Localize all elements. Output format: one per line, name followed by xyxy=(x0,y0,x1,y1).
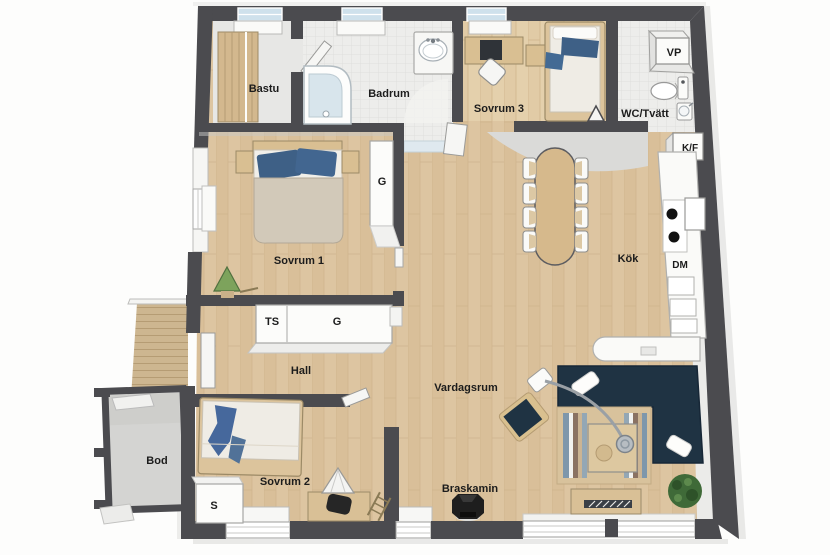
svg-text:Badrum: Badrum xyxy=(368,88,410,100)
svg-text:DM: DM xyxy=(672,260,688,271)
svg-text:Bod: Bod xyxy=(146,455,167,467)
svg-text:K/F: K/F xyxy=(682,143,698,154)
svg-text:Sovrum 2: Sovrum 2 xyxy=(260,476,310,488)
svg-text:WC/Tvätt: WC/Tvätt xyxy=(621,108,669,120)
svg-text:Hall: Hall xyxy=(291,365,311,377)
svg-text:VP: VP xyxy=(667,47,682,59)
svg-text:TS: TS xyxy=(265,316,279,328)
svg-text:G: G xyxy=(333,316,342,328)
svg-text:Braskamin: Braskamin xyxy=(442,483,499,495)
svg-text:Sovrum 1: Sovrum 1 xyxy=(274,255,324,267)
svg-text:Vardagsrum: Vardagsrum xyxy=(434,382,498,394)
svg-text:Kök: Kök xyxy=(618,253,640,265)
svg-text:Bastu: Bastu xyxy=(249,83,280,95)
svg-text:S: S xyxy=(210,500,217,512)
svg-text:Sovrum 3: Sovrum 3 xyxy=(474,103,524,115)
svg-text:G: G xyxy=(378,176,387,188)
